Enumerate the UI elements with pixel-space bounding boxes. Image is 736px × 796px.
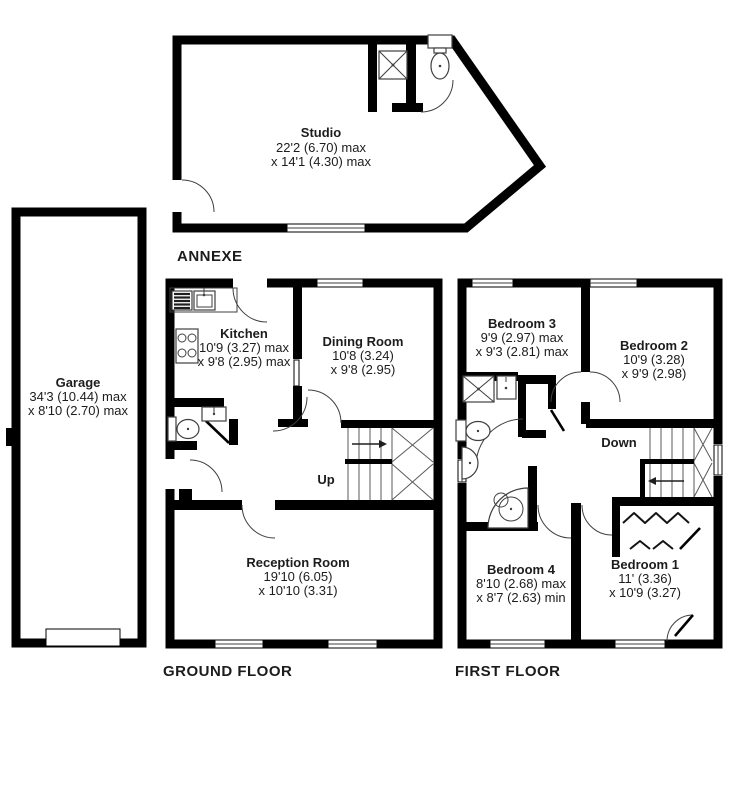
room-dim: 8'10 (2.68) max <box>476 576 566 591</box>
window <box>215 639 263 650</box>
shower-icon <box>463 376 494 402</box>
window <box>317 278 363 289</box>
wall-segment <box>278 419 308 427</box>
door-opening <box>171 180 182 212</box>
room-dim: x 9'8 (2.95) <box>331 362 396 377</box>
room-dim: x 10'10 (3.31) <box>258 583 337 598</box>
sink-icon <box>497 376 516 399</box>
room-dim: x 9'9 (2.98) <box>622 366 687 381</box>
wall-segment <box>179 489 192 501</box>
window <box>490 639 545 650</box>
stairs-down-label: Down <box>601 435 636 450</box>
wall-segment <box>166 500 242 510</box>
wall-segment <box>612 497 620 557</box>
wall-segment <box>6 428 18 446</box>
room-dim: 9'9 (2.97) max <box>481 330 564 345</box>
room-dim: 19'10 (6.05) <box>264 569 333 584</box>
wall-segment <box>275 500 438 510</box>
room-name-bedroom4: Bedroom 4 <box>487 562 556 577</box>
door-opening <box>165 459 176 489</box>
wall-segment <box>293 386 302 424</box>
door-closed <box>294 360 299 386</box>
toilet-icon <box>456 420 490 441</box>
garage-plan: Garage 34'3 (10.44) max x 8'10 (2.70) ma… <box>6 212 142 646</box>
wall-segment <box>168 441 197 450</box>
ground-floor-label: GROUND FLOOR <box>163 663 292 680</box>
room-dim: x 10'9 (3.27) <box>609 585 681 600</box>
room-name-kitchen: Kitchen <box>220 326 268 341</box>
wall-segment <box>522 430 546 438</box>
annexe-label: ANNEXE <box>177 248 243 265</box>
window <box>287 223 365 234</box>
first-floor-label: FIRST FLOOR <box>455 663 561 680</box>
garage-door <box>46 629 120 646</box>
room-name-studio: Studio <box>301 125 341 140</box>
room-dim: x 8'7 (2.63) min <box>476 590 565 605</box>
wall-segment <box>229 419 238 445</box>
first-floor-plan: Bedroom 3 9'9 (2.97) max x 9'3 (2.81) ma… <box>455 278 724 681</box>
room-name-dining: Dining Room <box>323 334 404 349</box>
room-dim: x 9'8 (2.95) max <box>198 354 291 369</box>
drainer-icon <box>172 291 192 310</box>
toilet-icon <box>168 417 199 441</box>
room-dim: 11' (3.36) <box>618 571 672 586</box>
room-name-bedroom2: Bedroom 2 <box>620 338 688 353</box>
floorplan-page: Studio 22'2 (6.70) max x 14'1 (4.30) max… <box>0 0 736 796</box>
wall-segment <box>341 420 438 428</box>
garage-outline <box>16 212 142 643</box>
room-name-bedroom1: Bedroom 1 <box>611 557 679 572</box>
wall-segment <box>293 283 302 359</box>
window <box>328 639 377 650</box>
ground-floor-plan: Kitchen 10'9 (3.27) max x 9'8 (2.95) max… <box>163 278 438 681</box>
room-dim: 10'8 (3.24) <box>332 348 394 363</box>
room-dim: 34'3 (10.44) max <box>29 389 127 404</box>
wall-segment <box>586 419 718 428</box>
wall-segment <box>368 36 377 112</box>
room-name-reception: Reception Room <box>246 555 349 570</box>
wall-segment <box>518 375 556 384</box>
wall-segment <box>392 103 423 112</box>
room-dim: x 8'10 (2.70) max <box>28 403 129 418</box>
annexe-plan: Studio 22'2 (6.70) max x 14'1 (4.30) max… <box>171 35 540 265</box>
floorplan-drawing: Studio 22'2 (6.70) max x 14'1 (4.30) max… <box>0 0 736 796</box>
window <box>590 278 637 289</box>
wall-segment <box>518 384 526 437</box>
wall-segment <box>571 503 581 644</box>
room-dim: x 9'3 (2.81) max <box>476 344 569 359</box>
window <box>472 278 513 289</box>
room-dim: x 14'1 (4.30) max <box>271 154 372 169</box>
room-dim: 10'9 (3.28) <box>623 352 685 367</box>
window <box>713 444 724 476</box>
wc-sink-icon <box>202 407 226 421</box>
room-name-bedroom3: Bedroom 3 <box>488 316 556 331</box>
wall-segment <box>166 398 224 407</box>
annexe-outline <box>177 40 540 228</box>
wall-segment <box>528 466 537 528</box>
window <box>615 639 665 650</box>
stairs-up-label: Up <box>317 472 334 487</box>
room-dim: 10'9 (3.27) max <box>199 340 289 355</box>
shower-icon <box>379 51 407 79</box>
wall-segment <box>612 497 718 506</box>
room-name-garage: Garage <box>56 375 101 390</box>
wall-segment <box>581 283 590 372</box>
sink-icon <box>194 288 215 310</box>
door-opening <box>233 278 267 289</box>
room-dim: 22'2 (6.70) max <box>276 140 366 155</box>
stove-icon <box>176 329 198 363</box>
